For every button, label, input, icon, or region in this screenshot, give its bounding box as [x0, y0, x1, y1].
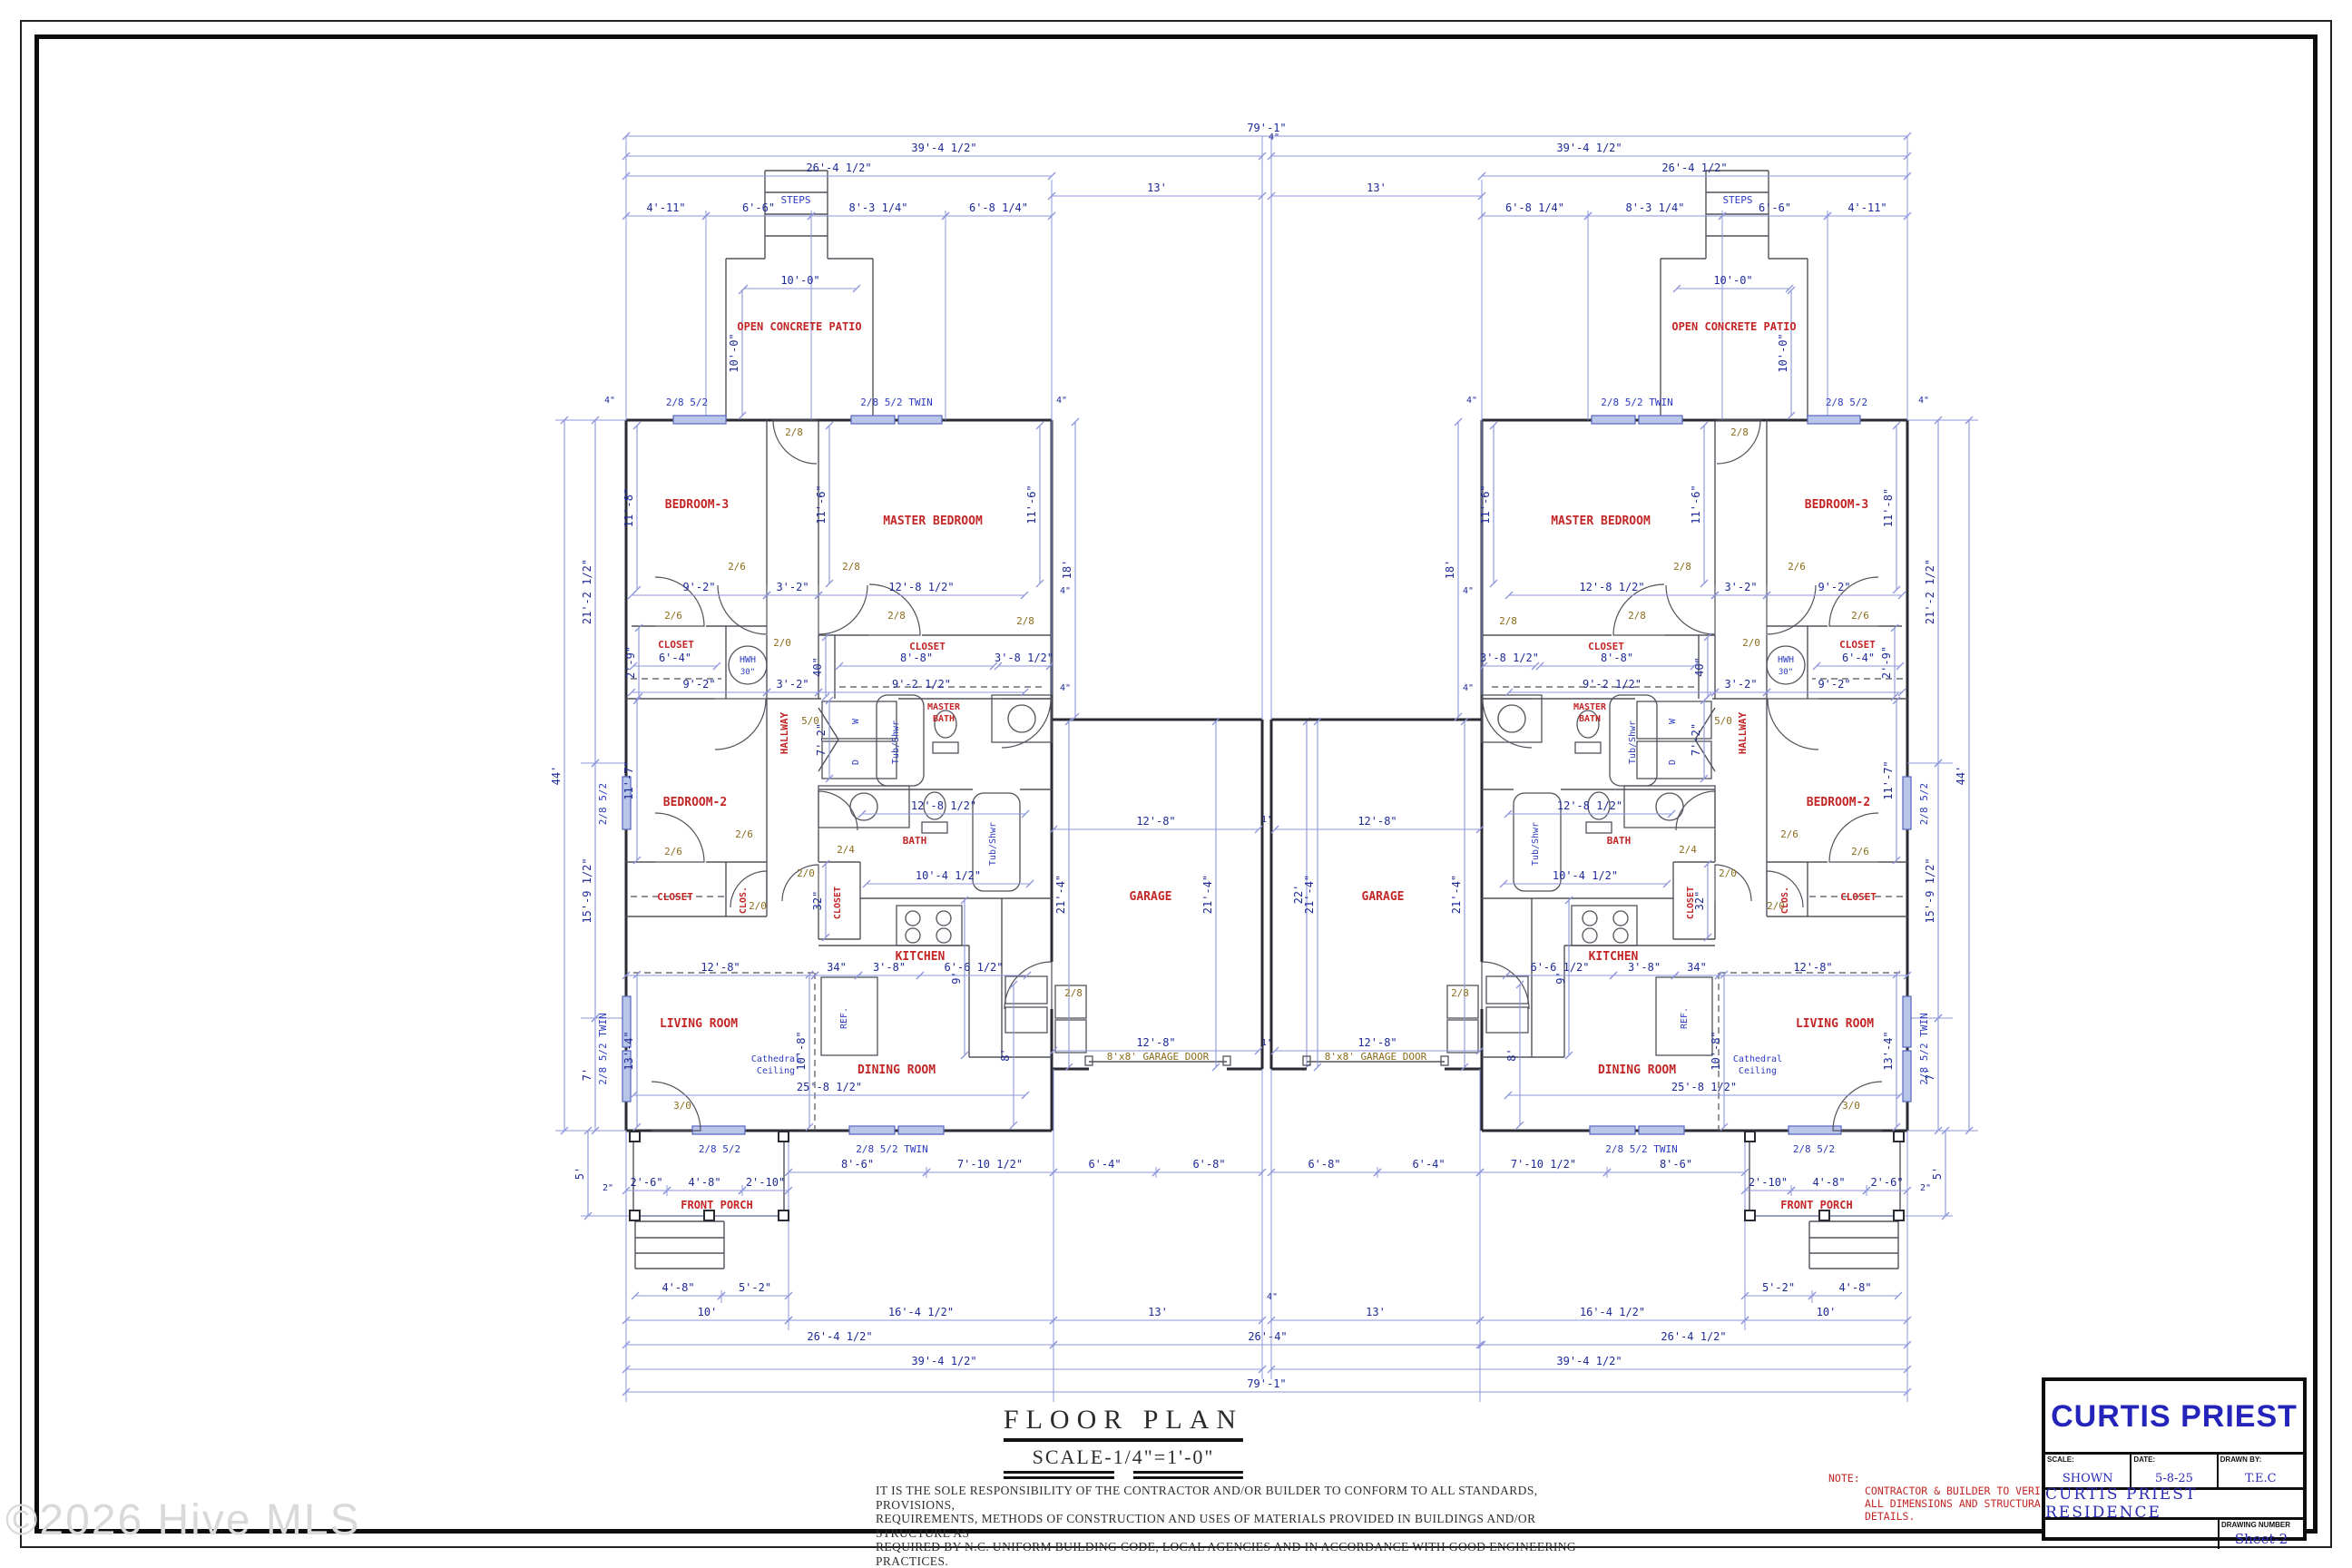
note-line-2: ALL DIMENSIONS AND STRUCTURAL	[1865, 1497, 2053, 1510]
svg-text:11'-6": 11'-6"	[1025, 485, 1038, 524]
svg-text:11'-6": 11'-6"	[1690, 485, 1702, 524]
svg-text:8'x8' GARAGE DOOR: 8'x8' GARAGE DOOR	[1325, 1051, 1427, 1063]
svg-text:6'-8": 6'-8"	[1308, 1158, 1340, 1171]
svg-text:2/8 5/2 TWIN: 2/8 5/2 TWIN	[1601, 397, 1672, 408]
svg-text:44': 44'	[1955, 766, 1967, 786]
plan-scale: SCALE-1/4"=1'-0"	[1004, 1445, 1243, 1469]
svg-text:2/8 5/2: 2/8 5/2	[1793, 1143, 1835, 1155]
svg-text:4'-8": 4'-8"	[661, 1281, 694, 1294]
svg-text:MASTER BEDROOM: MASTER BEDROOM	[883, 514, 983, 528]
svg-text:6'-4": 6'-4"	[1412, 1158, 1445, 1171]
svg-text:12'-8 1/2": 12'-8 1/2"	[1579, 581, 1644, 593]
mls-watermark: ©2026 Hive MLS	[5, 1495, 361, 1545]
svg-text:Cathedral: Cathedral	[751, 1054, 800, 1064]
svg-text:79'-1": 79'-1"	[1247, 1377, 1286, 1390]
svg-text:GARAGE: GARAGE	[1130, 890, 1172, 904]
svg-text:Ceiling: Ceiling	[757, 1066, 795, 1076]
title-block-drawnby-cell: DRAWN BY: T.E.C	[2219, 1455, 2303, 1487]
svg-text:15'-9 1/2": 15'-9 1/2"	[581, 857, 593, 923]
residence-title: CURTIS PRIEST RESIDENCE	[2045, 1490, 2303, 1520]
svg-text:40": 40"	[811, 657, 824, 677]
title-block-name: CURTIS PRIEST	[2045, 1381, 2303, 1455]
svg-text:15'-9 1/2": 15'-9 1/2"	[1924, 857, 1936, 923]
svg-text:8'-3 1/4": 8'-3 1/4"	[1625, 201, 1684, 214]
svg-text:CLOSET: CLOSET	[1840, 891, 1877, 903]
svg-text:9'-2": 9'-2"	[682, 678, 715, 691]
svg-text:25'-8 1/2": 25'-8 1/2"	[797, 1081, 862, 1093]
svg-text:2/8 5/2: 2/8 5/2	[1826, 397, 1867, 408]
svg-text:13'-4": 13'-4"	[622, 1031, 635, 1070]
svg-text:2/8: 2/8	[1673, 561, 1691, 573]
svg-text:HWH: HWH	[1778, 655, 1794, 665]
svg-text:4": 4"	[1463, 586, 1474, 596]
svg-text:REF.: REF.	[1680, 1007, 1690, 1029]
title-block-scale-cell: SCALE: SHOWN	[2045, 1455, 2131, 1487]
svg-text:8'-8": 8'-8"	[900, 652, 933, 664]
svg-text:12'-8 1/2": 12'-8 1/2"	[911, 799, 976, 812]
svg-text:3'-8 1/2": 3'-8 1/2"	[1480, 652, 1539, 664]
svg-text:2/8 5/2 TWIN: 2/8 5/2 TWIN	[856, 1143, 927, 1155]
svg-text:11'-7": 11'-7"	[622, 760, 635, 799]
svg-text:21'-4": 21'-4"	[1201, 875, 1214, 914]
svg-text:2/0: 2/0	[797, 867, 815, 879]
svg-text:11'-8": 11'-8"	[622, 488, 635, 527]
svg-text:9'-2 1/2": 9'-2 1/2"	[1583, 678, 1641, 691]
svg-text:2/0: 2/0	[1742, 637, 1760, 649]
svg-text:10'-4 1/2": 10'-4 1/2"	[916, 869, 981, 882]
title-block: CURTIS PRIEST SCALE: SHOWN DATE: 5-8-25 …	[2042, 1377, 2307, 1541]
svg-text:21'-4": 21'-4"	[1303, 875, 1316, 914]
svg-text:12'-8": 12'-8"	[1357, 815, 1396, 828]
svg-text:9'-2": 9'-2"	[1818, 678, 1850, 691]
svg-text:11'-6": 11'-6"	[1479, 485, 1492, 524]
svg-text:10': 10'	[698, 1306, 718, 1318]
drawing-number-label: DRAWING NUMBER	[2221, 1521, 2290, 1529]
svg-text:4": 4"	[1463, 683, 1474, 693]
svg-text:12'-8": 12'-8"	[1136, 1036, 1175, 1049]
svg-text:8'-8": 8'-8"	[1601, 652, 1633, 664]
svg-text:2/6: 2/6	[1788, 561, 1806, 573]
svg-text:2/6: 2/6	[1780, 828, 1798, 840]
svg-text:39'-4 1/2": 39'-4 1/2"	[1556, 142, 1622, 154]
svg-text:9'-2": 9'-2"	[682, 581, 715, 593]
svg-text:5/0: 5/0	[801, 715, 819, 727]
svg-text:4'-11": 4'-11"	[646, 201, 685, 214]
svg-text:Cathedral: Cathedral	[1733, 1054, 1782, 1064]
svg-text:21'-2 1/2": 21'-2 1/2"	[1924, 559, 1936, 624]
drawing-number-cell: DRAWING NUMBER Sheet-2	[2220, 1520, 2303, 1549]
svg-text:CLOSET: CLOSET	[909, 641, 946, 652]
svg-text:BEDROOM-2: BEDROOM-2	[663, 796, 727, 809]
svg-text:10'-0": 10'-0"	[1713, 274, 1752, 287]
svg-text:10'-0": 10'-0"	[728, 333, 740, 372]
svg-text:2/8: 2/8	[1064, 987, 1083, 999]
svg-text:26'-4": 26'-4"	[1248, 1330, 1287, 1343]
svg-text:CLOSET: CLOSET	[1686, 887, 1696, 919]
svg-text:11'-7": 11'-7"	[1882, 760, 1895, 799]
floor-plan-svg: 79'-1"39'-4 1/2"26'-4 1/2"13'4'-11"6'-6"…	[0, 0, 2352, 1568]
svg-text:79'-1": 79'-1"	[1247, 122, 1286, 134]
svg-text:7'-10 1/2": 7'-10 1/2"	[957, 1158, 1023, 1171]
svg-text:CLOSET: CLOSET	[657, 891, 693, 903]
svg-text:6'-4": 6'-4"	[1842, 652, 1875, 664]
svg-text:39'-4 1/2": 39'-4 1/2"	[1556, 1355, 1622, 1367]
svg-text:2": 2"	[603, 1183, 613, 1193]
date-value: 5-8-25	[2131, 1472, 2216, 1485]
svg-text:4": 4"	[1060, 683, 1071, 693]
svg-text:2/6: 2/6	[1851, 610, 1869, 622]
svg-text:2'-6": 2'-6"	[1870, 1176, 1903, 1189]
svg-text:STEPS: STEPS	[1722, 194, 1752, 206]
svg-text:40": 40"	[1693, 657, 1706, 677]
svg-text:2/8 5/2 TWIN: 2/8 5/2 TWIN	[860, 397, 932, 408]
svg-text:2/6: 2/6	[1851, 846, 1869, 857]
svg-text:2/8: 2/8	[1730, 426, 1749, 438]
svg-text:W: W	[851, 718, 861, 724]
svg-text:34": 34"	[827, 961, 847, 974]
svg-text:6'-4": 6'-4"	[659, 652, 691, 664]
svg-text:12'-8": 12'-8"	[701, 961, 740, 974]
disclaimer-line-3: REQUIRED BY N.C. UNIFORM BUILDING CODE, …	[876, 1540, 1592, 1568]
svg-text:CLOSET: CLOSET	[833, 887, 843, 919]
svg-text:MASTER: MASTER	[1573, 702, 1607, 712]
svg-text:BEDROOM-3: BEDROOM-3	[665, 498, 729, 512]
svg-text:2": 2"	[1920, 1183, 1931, 1193]
svg-text:OPEN CONCRETE PATIO: OPEN CONCRETE PATIO	[737, 320, 861, 333]
svg-text:11'-6": 11'-6"	[815, 485, 828, 524]
svg-text:6'-8 1/4": 6'-8 1/4"	[969, 201, 1028, 214]
svg-text:BATH: BATH	[933, 714, 955, 724]
svg-text:Tub/Shwr: Tub/Shwr	[1628, 720, 1638, 764]
scale-label: SCALE:	[2047, 1455, 2074, 1464]
svg-text:30": 30"	[1779, 668, 1793, 677]
note-block: NOTE: CONTRACTOR & BUILDER TO VERIFY ALL…	[1828, 1472, 2053, 1523]
svg-text:2/8 5/2 TWIN: 2/8 5/2 TWIN	[1918, 1013, 1930, 1084]
svg-text:39'-4 1/2": 39'-4 1/2"	[911, 1355, 976, 1367]
svg-text:CLOSET: CLOSET	[658, 639, 694, 651]
svg-text:2/8: 2/8	[1451, 987, 1469, 999]
svg-text:6'-6": 6'-6"	[742, 201, 775, 214]
svg-text:6'-8 1/4": 6'-8 1/4"	[1505, 201, 1564, 214]
svg-text:21'-2 1/2": 21'-2 1/2"	[581, 559, 593, 624]
svg-text:5'-2": 5'-2"	[739, 1281, 771, 1294]
svg-text:HWH: HWH	[740, 655, 756, 665]
svg-text:4": 4"	[1269, 132, 1279, 142]
svg-text:Tub/Shwr: Tub/Shwr	[1531, 822, 1541, 866]
svg-text:12'-8 1/2": 12'-8 1/2"	[1557, 799, 1622, 812]
svg-text:18': 18'	[1444, 560, 1456, 580]
svg-text:3/0: 3/0	[1842, 1100, 1860, 1112]
drawing-sheet: 79'-1"39'-4 1/2"26'-4 1/2"13'4'-11"6'-6"…	[0, 0, 2352, 1568]
svg-text:4": 4"	[1056, 396, 1067, 406]
plan-title: FLOOR PLAN	[1004, 1405, 1243, 1436]
svg-text:CLOS.: CLOS.	[739, 887, 749, 914]
svg-text:LIVING ROOM: LIVING ROOM	[1796, 1017, 1874, 1031]
note-line-3: DETAILS.	[1865, 1510, 2053, 1523]
svg-text:2/8 5/2: 2/8 5/2	[666, 397, 708, 408]
svg-text:2'-10": 2'-10"	[1749, 1176, 1788, 1189]
svg-text:3'-2": 3'-2"	[1724, 678, 1757, 691]
svg-text:6'-4": 6'-4"	[1088, 1158, 1121, 1171]
svg-text:DINING ROOM: DINING ROOM	[1598, 1063, 1676, 1077]
svg-text:5/0: 5/0	[1714, 715, 1732, 727]
svg-text:2/8: 2/8	[1016, 615, 1034, 627]
svg-text:6'-8": 6'-8"	[1192, 1158, 1225, 1171]
svg-text:5': 5'	[1931, 1167, 1944, 1180]
svg-text:2/0: 2/0	[749, 900, 767, 912]
svg-text:16'-4 1/2": 16'-4 1/2"	[1580, 1306, 1645, 1318]
svg-text:4'-8": 4'-8"	[688, 1176, 720, 1189]
svg-text:4": 4"	[1267, 1292, 1278, 1302]
svg-text:12'-8": 12'-8"	[1793, 961, 1832, 974]
svg-text:4'-8": 4'-8"	[1838, 1281, 1871, 1294]
svg-text:BATH: BATH	[1579, 714, 1601, 724]
svg-text:2/8 5/2: 2/8 5/2	[699, 1143, 740, 1155]
plan-title-underline	[1004, 1438, 1243, 1442]
svg-text:DINING ROOM: DINING ROOM	[857, 1063, 936, 1077]
plan-scale-underline	[1004, 1471, 1243, 1479]
svg-text:Tub/Shwr: Tub/Shwr	[988, 822, 998, 866]
title-block-empty-cell	[2045, 1520, 2220, 1549]
svg-text:44': 44'	[550, 766, 563, 786]
svg-text:13': 13'	[1148, 1306, 1168, 1318]
svg-text:8'x8' GARAGE DOOR: 8'x8' GARAGE DOOR	[1107, 1051, 1210, 1063]
svg-text:3'-2": 3'-2"	[776, 678, 808, 691]
svg-text:REF.: REF.	[839, 1007, 849, 1029]
svg-text:8'-3 1/4": 8'-3 1/4"	[848, 201, 907, 214]
svg-text:2/8: 2/8	[785, 426, 803, 438]
scale-value: SHOWN	[2045, 1472, 2130, 1485]
svg-text:9': 9'	[950, 971, 963, 984]
svg-text:HALLWAY: HALLWAY	[779, 711, 790, 754]
svg-text:MASTER BEDROOM: MASTER BEDROOM	[1551, 514, 1651, 528]
svg-text:3'-2": 3'-2"	[1724, 581, 1757, 593]
svg-text:BEDROOM-2: BEDROOM-2	[1807, 796, 1870, 809]
svg-text:2'-9": 2'-9"	[1880, 646, 1893, 679]
svg-text:2/6: 2/6	[728, 561, 746, 573]
disclaimer-text: IT IS THE SOLE RESPONSIBILITY OF THE CON…	[876, 1484, 1592, 1568]
svg-text:2/8 5/2 TWIN: 2/8 5/2 TWIN	[597, 1013, 609, 1084]
svg-text:7': 7'	[581, 1068, 593, 1081]
svg-text:4'-8": 4'-8"	[1812, 1176, 1845, 1189]
svg-text:5': 5'	[573, 1167, 586, 1180]
svg-text:MASTER: MASTER	[927, 702, 961, 712]
svg-text:KITCHEN: KITCHEN	[1589, 950, 1639, 964]
svg-text:2'-10": 2'-10"	[746, 1176, 785, 1189]
svg-text:25'-8 1/2": 25'-8 1/2"	[1671, 1081, 1737, 1093]
svg-text:LIVING ROOM: LIVING ROOM	[660, 1017, 738, 1031]
svg-text:34": 34"	[1687, 961, 1707, 974]
svg-text:7'-2": 7'-2"	[815, 723, 828, 756]
svg-text:4": 4"	[604, 396, 615, 406]
svg-text:OPEN CONCRETE PATIO: OPEN CONCRETE PATIO	[1671, 320, 1796, 333]
svg-text:39'-4 1/2": 39'-4 1/2"	[911, 142, 976, 154]
svg-text:16'-4 1/2": 16'-4 1/2"	[888, 1306, 954, 1318]
svg-text:FRONT PORCH: FRONT PORCH	[1780, 1199, 1852, 1211]
svg-text:W: W	[1668, 718, 1678, 724]
svg-text:26'-4 1/2": 26'-4 1/2"	[807, 1330, 872, 1343]
date-label: DATE:	[2133, 1455, 2155, 1464]
svg-text:7'-10 1/2": 7'-10 1/2"	[1511, 1158, 1576, 1171]
svg-text:2/8: 2/8	[887, 610, 906, 622]
svg-text:7'-2": 7'-2"	[1690, 723, 1702, 756]
svg-text:32": 32"	[811, 891, 824, 911]
svg-text:12'-8": 12'-8"	[1136, 815, 1175, 828]
svg-text:8': 8'	[1505, 1048, 1518, 1061]
svg-text:21'-4": 21'-4"	[1054, 875, 1067, 914]
note-label: NOTE:	[1828, 1472, 2053, 1485]
svg-text:2/0: 2/0	[773, 637, 791, 649]
disclaimer-line-2: REQUIREMENTS, METHODS OF CONSTRUCTION AN…	[876, 1512, 1592, 1540]
svg-text:26'-4 1/2": 26'-4 1/2"	[806, 162, 871, 174]
svg-text:2'-6": 2'-6"	[630, 1176, 662, 1189]
svg-text:6'-6": 6'-6"	[1759, 201, 1791, 214]
svg-text:9'-2 1/2": 9'-2 1/2"	[892, 678, 951, 691]
svg-text:10'-0": 10'-0"	[780, 274, 819, 287]
svg-text:BATH: BATH	[1607, 835, 1632, 847]
svg-text:2/8: 2/8	[1499, 615, 1517, 627]
svg-text:13': 13'	[1367, 181, 1387, 194]
svg-text:26'-4 1/2": 26'-4 1/2"	[1661, 162, 1727, 174]
svg-text:10': 10'	[1817, 1306, 1837, 1318]
svg-text:4": 4"	[1060, 586, 1071, 596]
svg-text:4": 4"	[1466, 396, 1477, 406]
svg-text:11'-8": 11'-8"	[1882, 488, 1895, 527]
svg-text:10'-4 1/2": 10'-4 1/2"	[1553, 869, 1618, 882]
svg-text:13': 13'	[1366, 1306, 1386, 1318]
svg-text:12'-8 1/2": 12'-8 1/2"	[888, 581, 954, 593]
svg-text:2/8 5/2: 2/8 5/2	[1918, 783, 1930, 825]
sheet-number: Sheet-2	[2220, 1531, 2303, 1547]
plan-caption: FLOOR PLAN SCALE-1/4"=1'-0"	[1004, 1405, 1243, 1479]
svg-text:GARAGE: GARAGE	[1362, 890, 1405, 904]
title-block-meta-row: SCALE: SHOWN DATE: 5-8-25 DRAWN BY: T.E.…	[2045, 1455, 2303, 1490]
svg-text:8'-6": 8'-6"	[841, 1158, 874, 1171]
svg-text:12'-8": 12'-8"	[1357, 1036, 1396, 1049]
svg-text:BATH: BATH	[903, 835, 927, 847]
svg-text:2/4: 2/4	[1679, 844, 1697, 856]
drawn-by-label: DRAWN BY:	[2220, 1455, 2262, 1464]
svg-text:BEDROOM-3: BEDROOM-3	[1805, 498, 1868, 512]
svg-text:2/6: 2/6	[735, 828, 753, 840]
svg-text:2'-9": 2'-9"	[624, 646, 637, 679]
svg-text:26'-4 1/2": 26'-4 1/2"	[1661, 1330, 1726, 1343]
svg-text:CLOS.: CLOS.	[1780, 887, 1790, 914]
svg-text:STEPS: STEPS	[780, 194, 810, 206]
svg-text:KITCHEN: KITCHEN	[896, 950, 946, 964]
title-block-number-row: DRAWING NUMBER Sheet-2	[2045, 1520, 2303, 1549]
svg-text:2/0: 2/0	[1719, 867, 1737, 879]
svg-text:2/6: 2/6	[664, 610, 682, 622]
svg-text:2/8 5/2: 2/8 5/2	[597, 783, 609, 825]
svg-text:2/8: 2/8	[1628, 610, 1646, 622]
svg-text:2/8: 2/8	[842, 561, 860, 573]
disclaimer-line-1: IT IS THE SOLE RESPONSIBILITY OF THE CON…	[876, 1484, 1592, 1512]
svg-text:21'-4": 21'-4"	[1450, 875, 1463, 914]
svg-text:D: D	[1668, 759, 1678, 765]
svg-text:10'-8": 10'-8"	[1710, 1031, 1722, 1070]
svg-text:FRONT PORCH: FRONT PORCH	[681, 1199, 752, 1211]
svg-text:8'-6": 8'-6"	[1660, 1158, 1692, 1171]
note-line-1: CONTRACTOR & BUILDER TO VERIFY	[1865, 1485, 2053, 1497]
svg-text:9'-2": 9'-2"	[1818, 581, 1850, 593]
svg-text:2/6: 2/6	[664, 846, 682, 857]
svg-text:10'-0": 10'-0"	[1777, 333, 1789, 372]
svg-text:2/4: 2/4	[837, 844, 855, 856]
title-block-date-cell: DATE: 5-8-25	[2131, 1455, 2218, 1487]
svg-text:2/8 5/2 TWIN: 2/8 5/2 TWIN	[1605, 1143, 1677, 1155]
svg-text:13'-4": 13'-4"	[1882, 1031, 1895, 1070]
svg-text:3'-8 1/2": 3'-8 1/2"	[995, 652, 1053, 664]
drawn-by-value: T.E.C	[2219, 1472, 2303, 1485]
svg-text:8': 8'	[999, 1048, 1012, 1061]
svg-text:Tub/Shwr: Tub/Shwr	[891, 720, 901, 764]
svg-text:3/0: 3/0	[673, 1100, 691, 1112]
svg-text:9': 9'	[1554, 971, 1567, 984]
svg-text:5'-2": 5'-2"	[1762, 1281, 1795, 1294]
svg-text:CLOSET: CLOSET	[1839, 639, 1876, 651]
svg-text:4'-11": 4'-11"	[1847, 201, 1886, 214]
svg-text:HALLWAY: HALLWAY	[1737, 711, 1749, 754]
svg-text:30": 30"	[740, 668, 755, 677]
svg-text:13': 13'	[1147, 181, 1167, 194]
svg-text:10'-8": 10'-8"	[795, 1031, 808, 1070]
svg-text:Ceiling: Ceiling	[1739, 1066, 1777, 1076]
svg-text:CLOSET: CLOSET	[1588, 641, 1624, 652]
svg-text:3'-2": 3'-2"	[776, 581, 808, 593]
svg-text:4": 4"	[1918, 396, 1929, 406]
svg-text:18': 18'	[1061, 560, 1073, 580]
svg-text:D: D	[851, 759, 861, 765]
